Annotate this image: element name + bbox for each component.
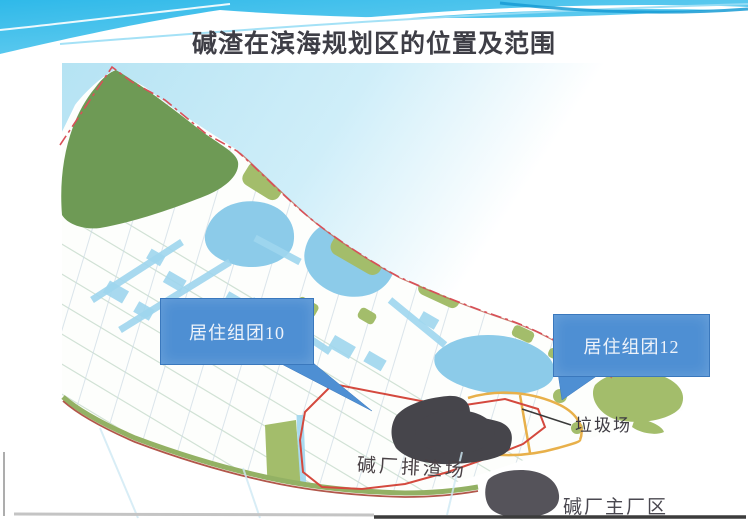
label-main-plant: 碱厂主厂区 xyxy=(563,492,668,519)
label-slag-site: 碱厂排渣场 xyxy=(356,450,467,483)
label-landfill: 垃圾场 xyxy=(575,411,632,436)
planning-map-image xyxy=(0,0,748,520)
page-title: 碱渣在滨海规划区的位置及范围 xyxy=(0,24,748,60)
callout-residential-cluster-12: 居住组团12 xyxy=(553,314,710,377)
main-plant-shape xyxy=(485,470,559,518)
callout-residential-cluster-10: 居住组团10 xyxy=(160,298,314,365)
callout-label: 居住组团10 xyxy=(189,319,285,345)
slide: 碱渣在滨海规划区的位置及范围 居住组团10 居住组团12 垃圾场 碱厂排渣场 碱… xyxy=(0,0,748,520)
callout-label: 居住组团12 xyxy=(584,333,680,359)
